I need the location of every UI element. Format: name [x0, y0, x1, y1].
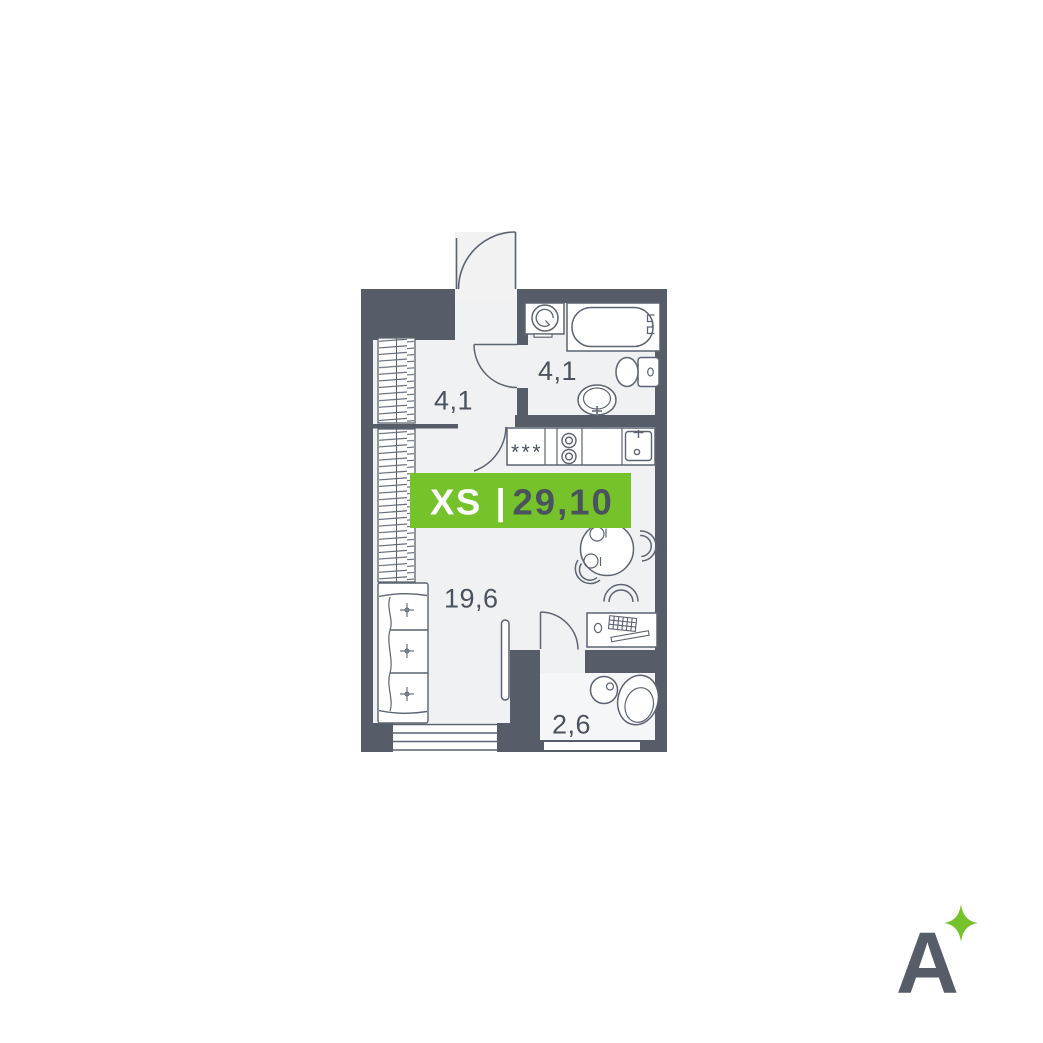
open-door-panel — [502, 620, 510, 700]
bathroom-area-label: 4,1 — [538, 356, 577, 386]
floor-plan: *** — [0, 0, 1043, 1043]
window-glazing — [393, 723, 497, 752]
wardrobe-top — [378, 338, 415, 423]
balcony-side-table — [591, 677, 618, 704]
balcony-window-glazing — [544, 742, 640, 750]
badge-text: XS | 29,10 — [430, 482, 614, 524]
wall-block-top-left — [361, 289, 455, 340]
logo-letter: A — [896, 915, 959, 1012]
washbasin — [578, 385, 616, 415]
floor-plan-page: *** — [0, 0, 1043, 1043]
wardrobe-bottom — [378, 429, 415, 582]
wall-hall-bath-stub — [517, 388, 528, 415]
wall-left-outer — [361, 289, 373, 752]
washing-machine — [525, 303, 564, 337]
living-area-label: 19,6 — [444, 584, 499, 614]
area-badge: XS | 29,10 — [410, 473, 631, 528]
sofa — [378, 583, 428, 723]
wall-balcony-top — [585, 650, 667, 673]
wall-top-right — [517, 289, 667, 303]
main-window — [393, 723, 497, 752]
wall-thin-partition — [373, 424, 458, 429]
wall-window-pier-right — [497, 723, 540, 752]
hallway-area-label: 4,1 — [434, 386, 473, 416]
kitchen-counter: *** — [507, 428, 655, 465]
refrigerator-marks: *** — [511, 441, 543, 464]
toilet — [616, 358, 659, 387]
balcony-area-label: 2,6 — [552, 710, 591, 740]
wall-window-pier-left — [361, 723, 393, 752]
bathtub — [567, 303, 660, 351]
entry-vestibule — [455, 232, 517, 302]
brand-logo: A — [896, 904, 978, 1012]
wall-bath-bottom — [515, 415, 667, 427]
